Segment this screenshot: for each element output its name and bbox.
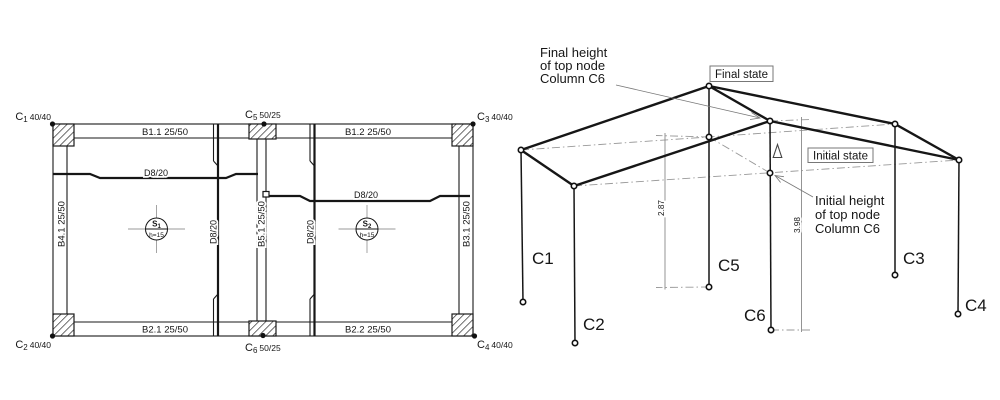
svg-text:Initial state: Initial state xyxy=(813,150,868,162)
initial-state-frame xyxy=(521,120,959,331)
column-label-c2: C240/40 xyxy=(15,339,51,352)
slab-marker-s2: S2 h=15 xyxy=(339,205,396,253)
svg-text:of top node: of top node xyxy=(815,207,880,222)
beam-label-b11: B1.1 25/50 xyxy=(142,127,188,138)
drawing-svg: C140/40 C240/40 C340/40 C440/40 C550/25 … xyxy=(0,0,1000,400)
deformation-diagram: 2.87 3.98 xyxy=(518,45,986,346)
final-state-box: Final state xyxy=(710,66,773,82)
final-state-frame xyxy=(521,86,959,186)
column-label-c1: C140/40 xyxy=(15,111,51,124)
rebar-label-h-left: D8/20 xyxy=(144,168,168,178)
rebar-label-h-right: D8/20 xyxy=(354,190,378,200)
column-label-c6: C650/25 xyxy=(245,342,281,355)
dimension-initial-height: 2.87 xyxy=(657,200,666,216)
frame-label-c3: C3 xyxy=(903,249,925,268)
frame-label-c5: C5 xyxy=(718,256,740,275)
svg-text:Column C6: Column C6 xyxy=(540,71,605,86)
beam-label-b21: B2.1 25/50 xyxy=(142,325,188,336)
delta-symbol xyxy=(773,145,782,158)
beam-label-b22: B2.2 25/50 xyxy=(345,325,391,336)
initial-height-note: Initial height of top node Column C6 xyxy=(815,193,885,236)
rebar-end-marker xyxy=(263,192,269,198)
frame-label-c4: C4 xyxy=(965,296,987,315)
beam-label-b12: B1.2 25/50 xyxy=(345,127,391,138)
column-C2 xyxy=(53,314,74,336)
floor-plan: C140/40 C240/40 C340/40 C440/40 C550/25 … xyxy=(15,109,513,355)
beam-label-b51: B5.1 25/50 xyxy=(257,201,268,247)
frame-label-c2: C2 xyxy=(583,315,605,334)
dimension-final-height: 3.98 xyxy=(793,217,802,233)
svg-text:Initial height: Initial height xyxy=(815,193,885,208)
column-C5 xyxy=(249,124,276,139)
svg-text:h=15: h=15 xyxy=(360,232,375,239)
beam-label-b41: B4.1 25/50 xyxy=(57,201,68,247)
svg-text:Column C6: Column C6 xyxy=(815,221,880,236)
column-C4 xyxy=(452,314,473,336)
column-label-c3: C340/40 xyxy=(477,111,513,124)
slab-marker-s1: S1 h=15 xyxy=(128,205,185,253)
column-label-c4: C440/40 xyxy=(477,339,513,352)
column-label-c5: C550/25 xyxy=(245,109,281,122)
structural-drawing: C140/40 C240/40 C340/40 C440/40 C550/25 … xyxy=(0,0,1000,400)
column-C1 xyxy=(53,124,74,146)
svg-text:h=15: h=15 xyxy=(149,232,164,239)
initial-state-box: Initial state xyxy=(808,148,873,163)
beam-label-b31: B3.1 25/50 xyxy=(462,201,473,247)
final-height-note: Final height of top node Column C6 xyxy=(540,45,608,86)
rebar-label-v-right: D8/20 xyxy=(306,220,316,244)
frame-label-c6: C6 xyxy=(744,306,766,325)
frame-label-c1: C1 xyxy=(532,249,554,268)
column-C3 xyxy=(452,124,473,146)
svg-text:Final state: Final state xyxy=(715,69,768,81)
rebar-label-v-left: D8/20 xyxy=(209,220,219,244)
